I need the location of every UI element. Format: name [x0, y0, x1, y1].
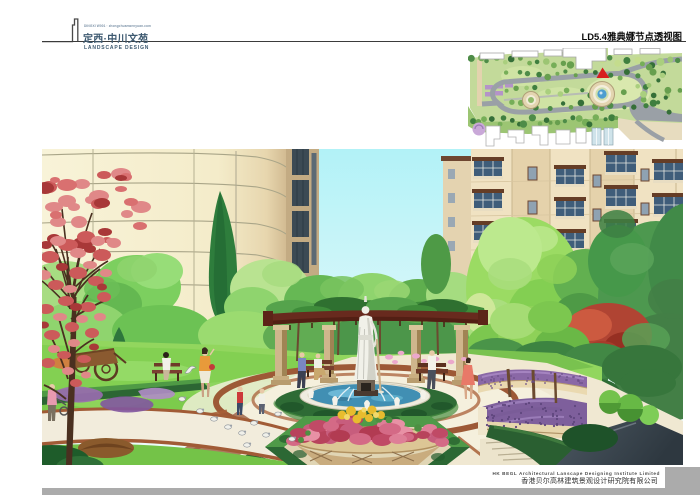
svg-text:HK BEGL Architectural Lanscape: HK BEGL Architectural Lanscape Designing…	[492, 471, 660, 476]
svg-text:DINGXI W001 · zhongchuanwenyua: DINGXI W001 · zhongchuanwenyuan.com	[84, 25, 151, 29]
svg-text:LANDSCAPE DESIGN: LANDSCAPE DESIGN	[84, 45, 149, 51]
